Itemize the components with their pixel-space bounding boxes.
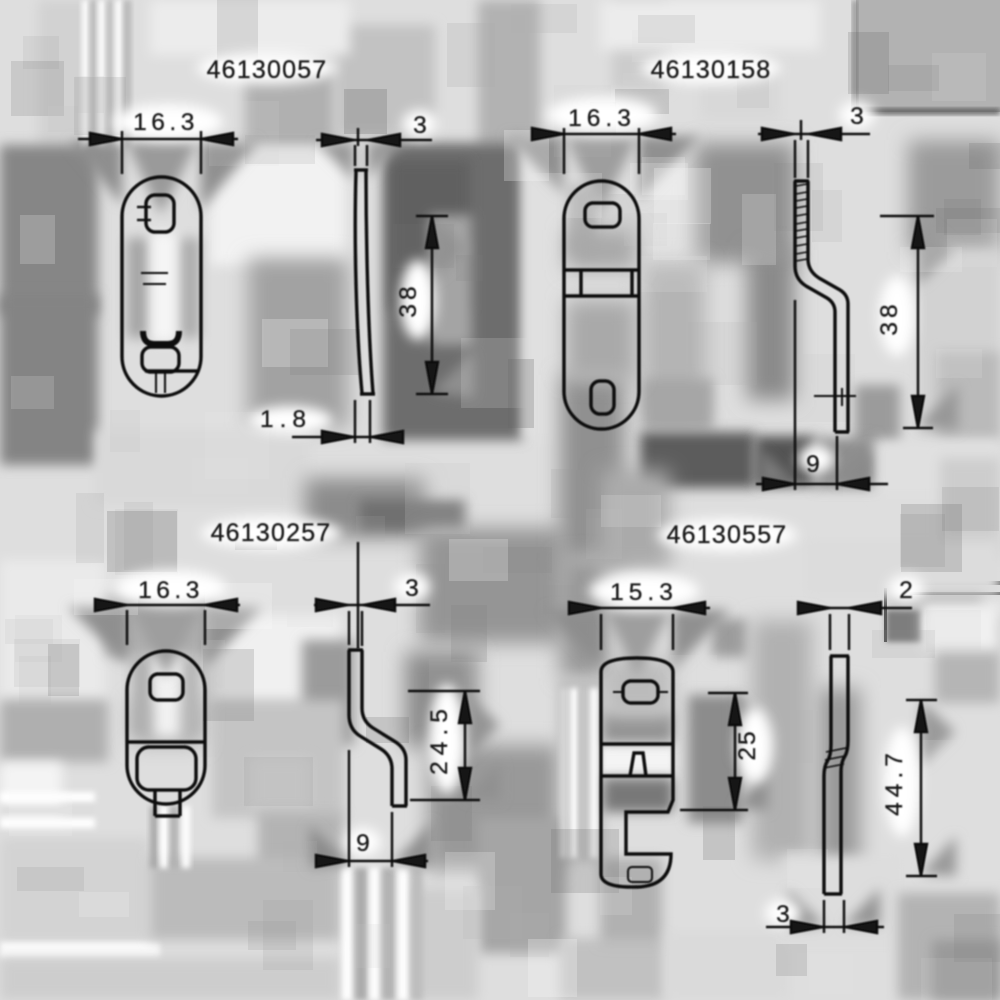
svg-text:16.3: 16.3 <box>133 109 199 136</box>
svg-text:3: 3 <box>850 103 864 130</box>
svg-text:1.8: 1.8 <box>260 406 312 433</box>
svg-text:46130257: 46130257 <box>211 519 332 547</box>
svg-text:24.5: 24.5 <box>426 703 453 775</box>
svg-text:46130057: 46130057 <box>207 56 328 84</box>
svg-text:9: 9 <box>356 830 370 857</box>
svg-text:9: 9 <box>806 451 820 478</box>
svg-text:15.3: 15.3 <box>610 579 678 606</box>
svg-text:44.7: 44.7 <box>881 748 908 816</box>
svg-text:38: 38 <box>876 300 903 335</box>
svg-text:46130557: 46130557 <box>667 521 788 549</box>
svg-text:3: 3 <box>413 112 427 139</box>
svg-text:2: 2 <box>899 577 913 604</box>
svg-text:38: 38 <box>395 282 422 317</box>
svg-text:16.3: 16.3 <box>568 105 636 132</box>
svg-text:3: 3 <box>776 901 790 928</box>
svg-text:16.3: 16.3 <box>138 577 204 604</box>
svg-text:25: 25 <box>734 729 761 760</box>
svg-text:46130158: 46130158 <box>651 56 772 84</box>
svg-text:3: 3 <box>405 575 419 602</box>
